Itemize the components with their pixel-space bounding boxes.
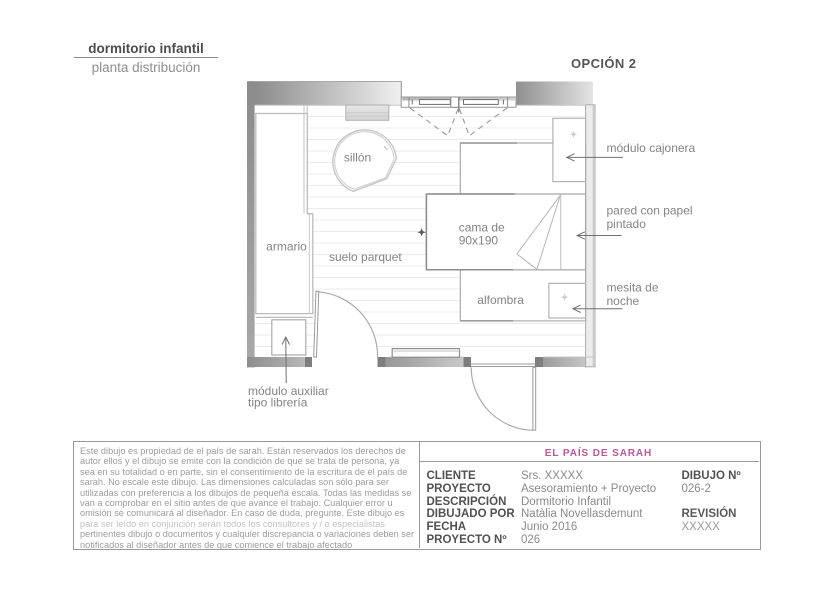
svg-text:90x190: 90x190 (459, 234, 499, 248)
svg-text:alfombra: alfombra (477, 293, 524, 307)
svg-text:pintado: pintado (607, 217, 647, 231)
svg-text:noche: noche (607, 294, 640, 308)
svg-text:pared con papel: pared con papel (607, 204, 693, 218)
svg-text:módulo cajonera: módulo cajonera (607, 141, 696, 155)
svg-text:mesita de: mesita de (607, 281, 659, 295)
svg-text:suelo parquet: suelo parquet (329, 250, 402, 264)
svg-text:tipo librería: tipo librería (248, 396, 308, 410)
svg-text:cama de: cama de (459, 221, 505, 235)
svg-text:sillón: sillón (344, 151, 371, 165)
svg-text:armario: armario (266, 240, 307, 254)
